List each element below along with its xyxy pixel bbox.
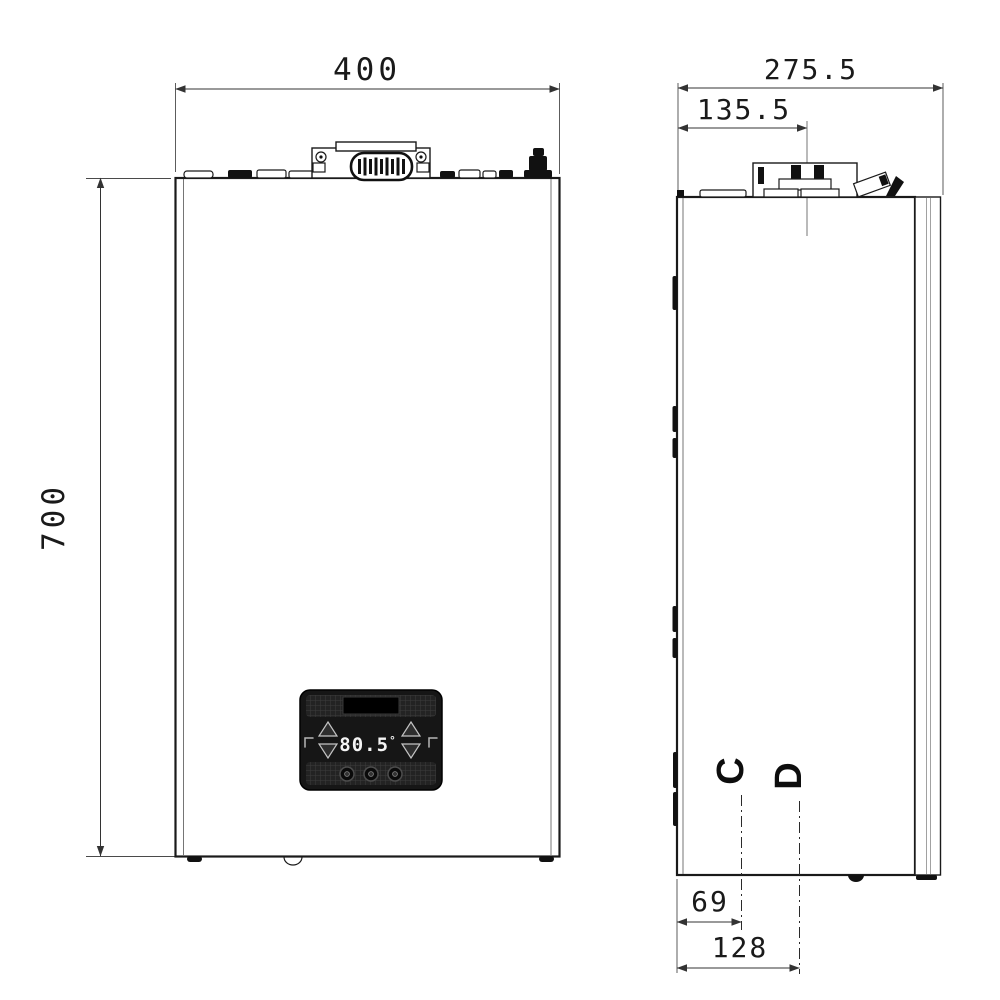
- foot-side: [848, 875, 864, 882]
- drain-bump: [284, 857, 302, 865]
- flue-clamp-angled: [854, 172, 891, 197]
- drawing-svg: 400 700: [0, 0, 1000, 1000]
- top-fittings-side: [677, 163, 904, 197]
- connection-d: D: [768, 762, 810, 974]
- front-view: 400 700: [36, 52, 560, 865]
- dim-flue-offset-label: 135.5: [697, 93, 791, 126]
- boiler-dimension-drawing: 400 700: [0, 0, 1000, 1000]
- dim-connection-d-label: 128: [712, 931, 769, 964]
- panel-display-window: [343, 697, 399, 714]
- connection-c-label: C: [710, 757, 752, 784]
- dim-front-width-label: 400: [333, 52, 401, 88]
- foot-left: [187, 856, 202, 862]
- control-panel: 80.5°: [300, 690, 442, 790]
- dim-connection-c-label: 69: [691, 885, 729, 918]
- foot-back: [916, 875, 937, 880]
- panel-buttons: [340, 767, 402, 781]
- valve-icon: [524, 148, 552, 178]
- display-temperature: 80.5°: [339, 734, 396, 756]
- dim-front-height-label: 700: [36, 483, 72, 551]
- dim-connection-d-offset: 128: [677, 931, 800, 968]
- back-panel: [915, 197, 941, 875]
- flue-corrugation: [358, 158, 405, 176]
- flue-bracket-front: [312, 142, 430, 180]
- side-view: 275.5 135.5: [673, 53, 944, 974]
- connection-d-label: D: [768, 762, 810, 789]
- top-fittings-front: [184, 142, 552, 180]
- dim-side-depth-label: 275.5: [764, 53, 858, 86]
- foot-right: [539, 856, 554, 862]
- dim-front-height: 700: [36, 178, 190, 857]
